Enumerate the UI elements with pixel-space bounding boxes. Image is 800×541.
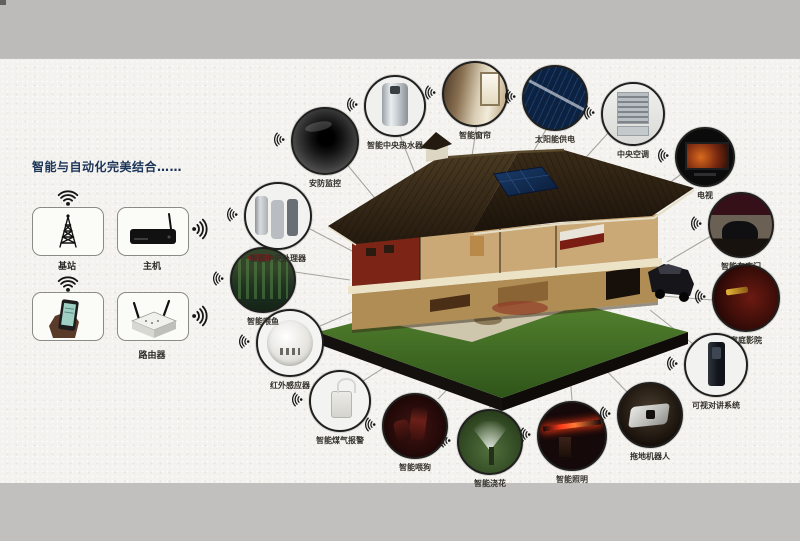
garage-photo bbox=[708, 192, 774, 258]
device-label: 可视对讲系统 bbox=[692, 400, 740, 411]
wifi-icon bbox=[688, 216, 703, 231]
device-garage-door: 智能车库门 bbox=[708, 192, 774, 272]
wifi-icon bbox=[190, 305, 212, 327]
processor-photo bbox=[244, 182, 312, 250]
wifi-icon bbox=[502, 89, 517, 104]
wifi-icon bbox=[57, 186, 79, 208]
device-label: 中央空调 bbox=[617, 149, 649, 160]
pet-feeder-photo bbox=[382, 393, 448, 459]
wifi-icon bbox=[289, 392, 304, 407]
device-pet-feeder: 智能喂狗 bbox=[382, 393, 448, 473]
device-television: 电视 bbox=[675, 127, 735, 201]
wifi-icon bbox=[236, 334, 251, 349]
device-label: 智能煤气报警 bbox=[316, 435, 364, 446]
cutaway-house bbox=[318, 132, 694, 411]
device-central-processor: 智能中央处理器 bbox=[244, 182, 312, 264]
device-label: 智能中央热水器 bbox=[367, 140, 423, 151]
wifi-icon bbox=[664, 356, 679, 371]
wifi-icon bbox=[581, 105, 596, 120]
wifi-icon bbox=[224, 207, 239, 222]
device-label: 安防监控 bbox=[309, 178, 341, 189]
device-smart-watering: 智能浇花 bbox=[457, 409, 523, 489]
solar-panel-photo bbox=[522, 65, 588, 131]
hub-label-base-station: 基站 bbox=[58, 259, 76, 272]
device-label: 智能照明 bbox=[556, 474, 588, 485]
device-mopping-robot: 拖地机器人 bbox=[617, 382, 683, 462]
water-heater-photo bbox=[364, 75, 426, 137]
hub-card-router bbox=[117, 292, 189, 341]
signal-tower-icon bbox=[48, 212, 88, 252]
device-label: 拖地机器人 bbox=[630, 451, 670, 462]
hub-card-base-station bbox=[32, 207, 104, 256]
tv-photo bbox=[675, 127, 735, 187]
device-central-water-heater: 智能中央热水器 bbox=[364, 75, 426, 151]
device-solar-power: 太阳能供电 bbox=[522, 65, 588, 145]
device-label: 智能窗帘 bbox=[459, 130, 491, 141]
page-title: 智能与自动化完美结合…… bbox=[32, 158, 182, 175]
curtain-photo bbox=[442, 61, 508, 127]
wifi-icon bbox=[190, 218, 212, 240]
hub-label-host: 主机 bbox=[143, 259, 161, 272]
device-security-camera: 安防监控 bbox=[291, 107, 359, 189]
wifi-icon bbox=[210, 271, 225, 286]
hub-card-host bbox=[117, 207, 189, 256]
device-label: 红外感应器 bbox=[270, 380, 310, 391]
hub-card-smartphone bbox=[32, 292, 104, 341]
wifi-icon bbox=[655, 148, 670, 163]
lighting-photo bbox=[537, 401, 607, 471]
smart-home-poster: 智能与自动化完美结合…… 基站 主机 bbox=[0, 0, 800, 541]
security-camera-photo bbox=[291, 107, 359, 175]
device-label: 智能浇花 bbox=[474, 478, 506, 489]
device-smart-curtain: 智能窗帘 bbox=[442, 61, 508, 141]
host-box-icon bbox=[125, 211, 181, 253]
wifi-icon bbox=[57, 272, 79, 294]
intercom-photo bbox=[684, 333, 748, 397]
device-smart-lighting: 智能照明 bbox=[537, 401, 607, 485]
home-theater-photo bbox=[712, 264, 780, 332]
device-label: 太阳能供电 bbox=[535, 134, 575, 145]
device-video-intercom: 可视对讲系统 bbox=[684, 333, 748, 411]
air-conditioner-photo bbox=[601, 82, 665, 146]
wifi-icon bbox=[271, 132, 286, 147]
device-label: 智能中央处理器 bbox=[250, 253, 306, 264]
device-label: 智能喂狗 bbox=[399, 462, 431, 473]
sprinkler-photo bbox=[457, 409, 523, 475]
wifi-icon bbox=[422, 85, 437, 100]
wifi-icon bbox=[344, 97, 359, 112]
wireless-router-icon bbox=[124, 295, 182, 339]
wifi-icon bbox=[692, 289, 707, 304]
hub-label-router: 路由器 bbox=[138, 348, 165, 361]
device-label: 智能喂鱼 bbox=[247, 316, 279, 327]
smartphone-hand-icon bbox=[45, 296, 91, 338]
robot-photo bbox=[617, 382, 683, 448]
